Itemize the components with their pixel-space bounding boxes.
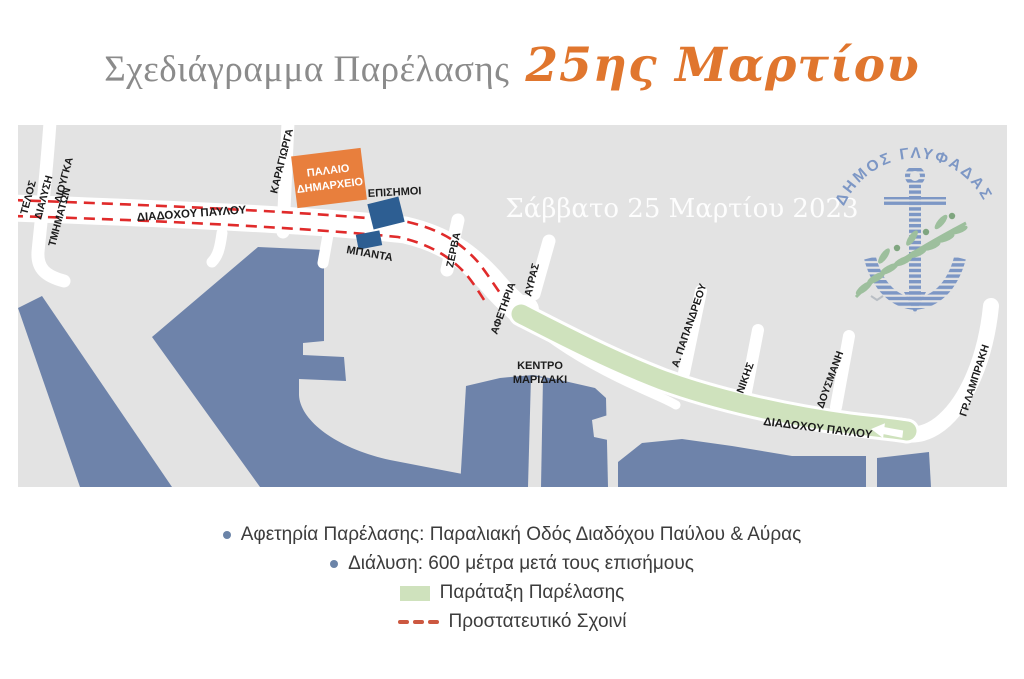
bullet-icon bbox=[330, 560, 338, 568]
legend-row-start: Αφετηρία Παρέλασης: Παραλιακή Οδός Διαδό… bbox=[223, 524, 802, 546]
poster: Σχεδιάγραμμα Παρέλασης 25ης Μαρτίου bbox=[0, 0, 1024, 679]
watermark-date: Σάββατο 25 Μαρτίου 2023 bbox=[505, 194, 858, 224]
water-bottom-right bbox=[877, 452, 931, 487]
legend-row-dispersal: Διάλυση: 600 μέτρα μετά τους επισήμους bbox=[330, 553, 694, 575]
red-dashes-icon bbox=[398, 620, 439, 624]
bullet-icon bbox=[223, 531, 231, 539]
green-swatch-icon bbox=[400, 586, 430, 601]
legend-row-rope: Προστατευτικό Σχοινί bbox=[398, 611, 627, 633]
label-kentro: ΚΕΝΤΡΟ bbox=[517, 360, 563, 372]
legend-lineup-text: Παράταξη Παρέλασης bbox=[440, 582, 625, 604]
old-town-hall-building: ΠΑΛΑΙΟ ΔΗΜΑΡΧΕΙΟ bbox=[291, 148, 367, 208]
legend: Αφετηρία Παρέλασης: Παραλιακή Οδός Διαδό… bbox=[0, 524, 1024, 633]
legend-row-lineup: Παράταξη Παρέλασης bbox=[400, 582, 625, 604]
label-maridaki: ΜΑΡΙΔΑΚΙ bbox=[513, 374, 567, 386]
legend-rope-text: Προστατευτικό Σχοινί bbox=[449, 611, 627, 633]
legend-start-text: Αφετηρία Παρέλασης: Παραλιακή Οδός Διαδό… bbox=[241, 524, 802, 546]
street-stub-b bbox=[323, 235, 328, 263]
legend-dispersal-text: Διάλυση: 600 μέτρα μετά τους επισήμους bbox=[348, 553, 694, 575]
